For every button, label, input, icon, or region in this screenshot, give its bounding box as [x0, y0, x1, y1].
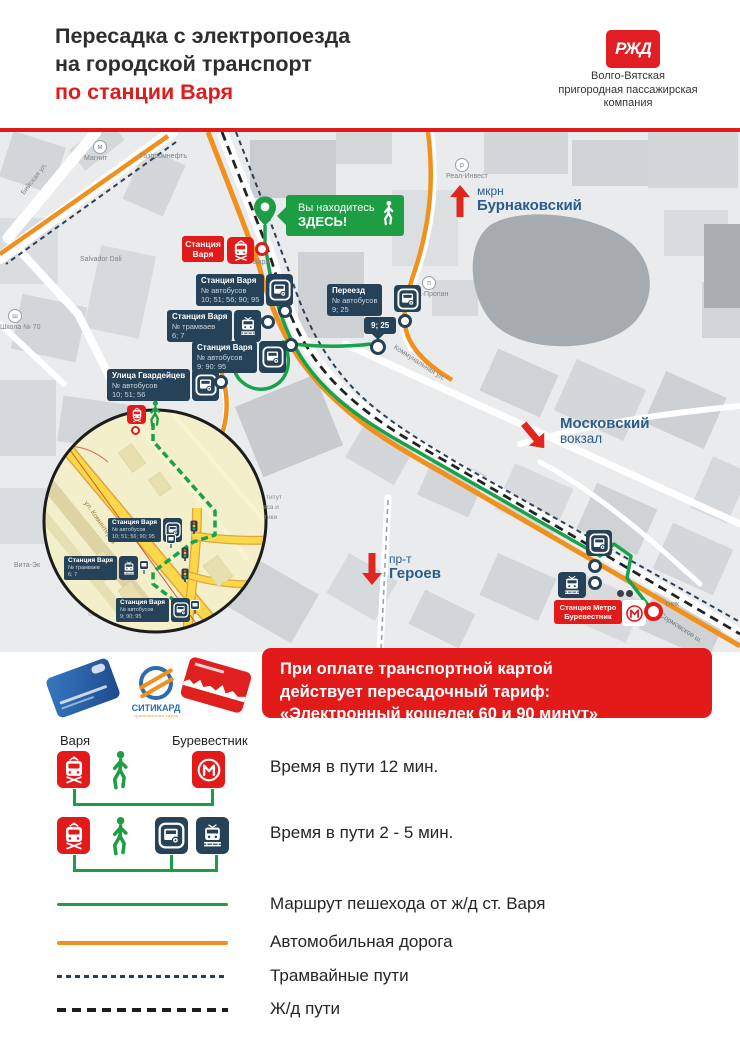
legend-rail-text: Ж/д пути: [270, 999, 340, 1019]
train-icon: [227, 237, 254, 264]
station-varya-line1: Станция: [182, 239, 224, 249]
you-are-here-line2: ЗДЕСЬ!: [298, 215, 375, 229]
company-line: Волго-Вятская: [540, 70, 716, 84]
map-poi-dot: [617, 590, 624, 597]
title-line-3: по станции Варя: [55, 78, 350, 106]
route-bracket-stem: [170, 855, 173, 869]
legend-road-line: [57, 941, 228, 945]
area-line: пр-т: [389, 553, 441, 566]
area-line: мкрн: [477, 185, 582, 198]
bus-stop-circle: [284, 338, 298, 352]
you-are-here-callout: Вы находитесь ЗДЕСЬ!: [286, 195, 404, 236]
stop-title: Станция Варя: [172, 312, 227, 322]
inset-walking-person-icon: [147, 400, 163, 432]
metro-badge-line1: Станция Метро: [554, 603, 622, 612]
metro-icon: [192, 751, 225, 788]
legend-road-text: Автомобильная дорога: [270, 932, 453, 952]
banner-line1: При оплате транспортной картой: [280, 658, 712, 681]
burevestnik-map-label: тник: [665, 601, 679, 608]
bus-icon: [266, 274, 293, 306]
transport-card-red: [179, 656, 252, 714]
stop-title: Станция Варя: [112, 519, 157, 527]
stop-title: Станция Варя: [120, 599, 165, 607]
citicard-ring-icon: [139, 666, 173, 700]
mini-tram-sign-icon: [139, 560, 149, 574]
stop-title: Переезд: [332, 286, 377, 296]
varya-station-stop: [255, 242, 269, 256]
bus-icon: [155, 817, 188, 854]
tram-icon: [234, 310, 261, 342]
page-title: Пересадка с электропоезда на городской т…: [55, 22, 350, 106]
red-divider: [0, 128, 740, 132]
bus-icon: [171, 598, 190, 622]
varya-map-label: Варя: [253, 259, 269, 266]
clipped-label-fragment: еса и: [263, 504, 279, 511]
stop-sub: № автобусов: [120, 607, 165, 614]
area-moskovsky: Московский вокзал: [560, 416, 649, 446]
stop-nums: 10; 51; 56; 90; 95: [201, 295, 259, 304]
poi-gazprom: Газпромнефть: [140, 153, 187, 160]
stop-title: Улица Гвардейцев: [112, 371, 185, 381]
metro-badge-line2: Буревестник: [554, 612, 622, 621]
citicard-logo: СИТИКАРД транспортная карта: [126, 666, 186, 718]
stop-title: Станция Варя: [68, 557, 113, 565]
school-icon: ш: [8, 309, 22, 323]
map-poi-dot: [626, 590, 633, 597]
stop-pereezd: Переезд № автобусов 9; 25: [327, 284, 382, 316]
tram-icon: [558, 572, 586, 598]
traffic-light-icon: [181, 568, 189, 582]
citicard-title: СИТИКАРД: [126, 703, 186, 713]
poster: Пересадка с электропоезда на городской т…: [0, 0, 740, 1046]
mini-bus-sign-icon: [190, 600, 200, 614]
real-invest-icon: р: [455, 158, 469, 172]
inset-stop-varya-tram: Станция Варя № трамваев 6; 7: [64, 556, 138, 580]
legend-walk-line: [57, 903, 228, 906]
company-line: компания: [540, 97, 716, 111]
legend-burevestnik-label: Буревестник: [172, 733, 248, 748]
inset-station-dot: [131, 426, 140, 435]
stop-sub: № трамваев: [172, 322, 227, 331]
bus-icon: [259, 341, 286, 373]
tram-icon: [119, 556, 138, 580]
poi-propan: А-Пропан: [417, 291, 448, 298]
poi-magnit: Магнит: [84, 155, 107, 162]
area-line: Героев: [389, 566, 441, 582]
citicard-subtitle: транспортная карта: [126, 713, 186, 718]
train-icon: [57, 751, 90, 788]
company-name: Волго-Вятская пригородная пассажирская к…: [540, 70, 716, 111]
legend-tram-text: Трамвайные пути: [270, 966, 409, 986]
clipped-label-fragment: тики: [264, 514, 277, 521]
tram-icon: [196, 817, 229, 854]
route-bracket: [73, 789, 214, 806]
route-stop-circle: [370, 339, 386, 355]
mini-bus-sign-icon: [166, 534, 176, 548]
transit-map: Вы находитесь ЗДЕСЬ! Станция Варя Варя С…: [0, 132, 740, 652]
transport-card-blue: [45, 657, 121, 719]
train-icon: [57, 817, 90, 854]
stop-varya-bus-2: Станция Варя № автобусов 9; 90; 95: [192, 341, 286, 373]
bus-stop-circle: [398, 314, 412, 328]
stop-sub: № автобусов: [112, 527, 157, 534]
tariff-banner: При оплате транспортной картой действует…: [262, 648, 712, 718]
stop-925-tag: 9; 25: [364, 317, 396, 334]
title-line-1: Пересадка с электропоезда: [55, 22, 350, 50]
route-bracket: [73, 855, 218, 872]
traffic-light-icon: [181, 547, 189, 561]
stop-nums: 9; 90; 95: [120, 614, 165, 621]
rzd-logo: РЖД: [606, 30, 660, 68]
rzd-logo-text: РЖД: [615, 39, 651, 59]
you-are-here-pin: [254, 196, 276, 226]
area-geroev: пр-т Героев: [389, 553, 441, 581]
burevestnik-station-stop: [644, 602, 663, 621]
title-line-2: на городской транспорт: [55, 50, 350, 78]
area-line: вокзал: [560, 432, 649, 446]
stop-varya-tram: Станция Варя № трамваев 6; 7: [167, 310, 261, 342]
stop-sub: № автобусов: [332, 296, 377, 305]
tram-stop-circle: [588, 576, 602, 590]
stop-sub: № автобусов: [201, 286, 259, 295]
stop-nums: 10; 51; 56; 90; 95: [112, 534, 157, 541]
stop-nums: 10; 51; 56: [112, 390, 185, 399]
magnit-icon: м: [93, 140, 107, 154]
clipped-label-fragment: титут: [266, 494, 282, 501]
stop-varya-bus-1: Станция Варя № автобусов 10; 51; 56; 90;…: [196, 274, 293, 306]
tram-stop-circle: [261, 315, 275, 329]
inset-stop-varya-bus-2: Станция Варя № автобусов 9; 90; 95: [116, 598, 190, 622]
bus-icon: [586, 530, 612, 556]
walking-person-icon: [108, 816, 132, 861]
stop-title: Станция Варя: [197, 343, 252, 353]
walking-person-icon: [381, 200, 396, 231]
area-burnakovsky: мкрн Бурнаковский: [477, 185, 582, 213]
arrow-down-icon: [362, 552, 382, 586]
bus-stop-circle: [214, 375, 228, 389]
walking-person-icon: [108, 750, 132, 795]
stop-sub: № автобусов: [112, 381, 185, 390]
stop-title: Станция Варя: [201, 276, 259, 286]
legend-rail-line: [57, 1008, 228, 1012]
stop-nums: 6; 7: [172, 331, 227, 340]
poi-vita: Вита-Эк: [14, 562, 40, 569]
station-varya-line2: Варя: [182, 249, 224, 259]
company-line: пригородная пассажирская: [540, 84, 716, 98]
inset-train-icon: [127, 405, 146, 424]
traffic-light-icon: [190, 520, 198, 534]
legend-walk-text: Маршрут пешехода от ж/д ст. Варя: [270, 894, 545, 914]
stop-nums: 6; 7: [68, 572, 113, 579]
bus-stop-circle: [278, 304, 292, 318]
metro-icon: [622, 600, 646, 626]
poi-real-invest: Реал-Инвест: [446, 173, 488, 180]
area-line: Московский: [560, 416, 649, 432]
bus-stop-circle: [588, 559, 602, 573]
station-varya-badge: Станция Варя: [182, 236, 224, 262]
stop-gvardeytsev: Улица Гвардейцев № автобусов 10; 51; 56: [107, 369, 219, 401]
stop-sub: № трамваев: [68, 565, 113, 572]
legend-varya-label: Варя: [60, 733, 90, 748]
propan-icon: п: [422, 276, 436, 290]
legend-time25: Время в пути 2 - 5 мин.: [270, 823, 453, 843]
poi-salvador: Salvador Dali: [80, 256, 122, 263]
stop-sub: № автобусов: [197, 353, 252, 362]
bus-icon: [394, 285, 421, 312]
arrow-up-icon: [450, 184, 470, 218]
banner-line3: «Электронный кошелек 60 и 90 минут»: [280, 703, 712, 726]
metro-burevestnik-badge: Станция Метро Буревестник: [554, 600, 622, 624]
legend-time12: Время в пути 12 мин.: [270, 757, 438, 777]
banner-line2: действует пересадочный тариф:: [280, 681, 712, 704]
stop-nums: 9; 25: [332, 305, 377, 314]
legend-tram-line: [57, 975, 228, 978]
area-line: Бурнаковский: [477, 198, 582, 214]
poi-school: Школа № 70: [0, 324, 40, 331]
